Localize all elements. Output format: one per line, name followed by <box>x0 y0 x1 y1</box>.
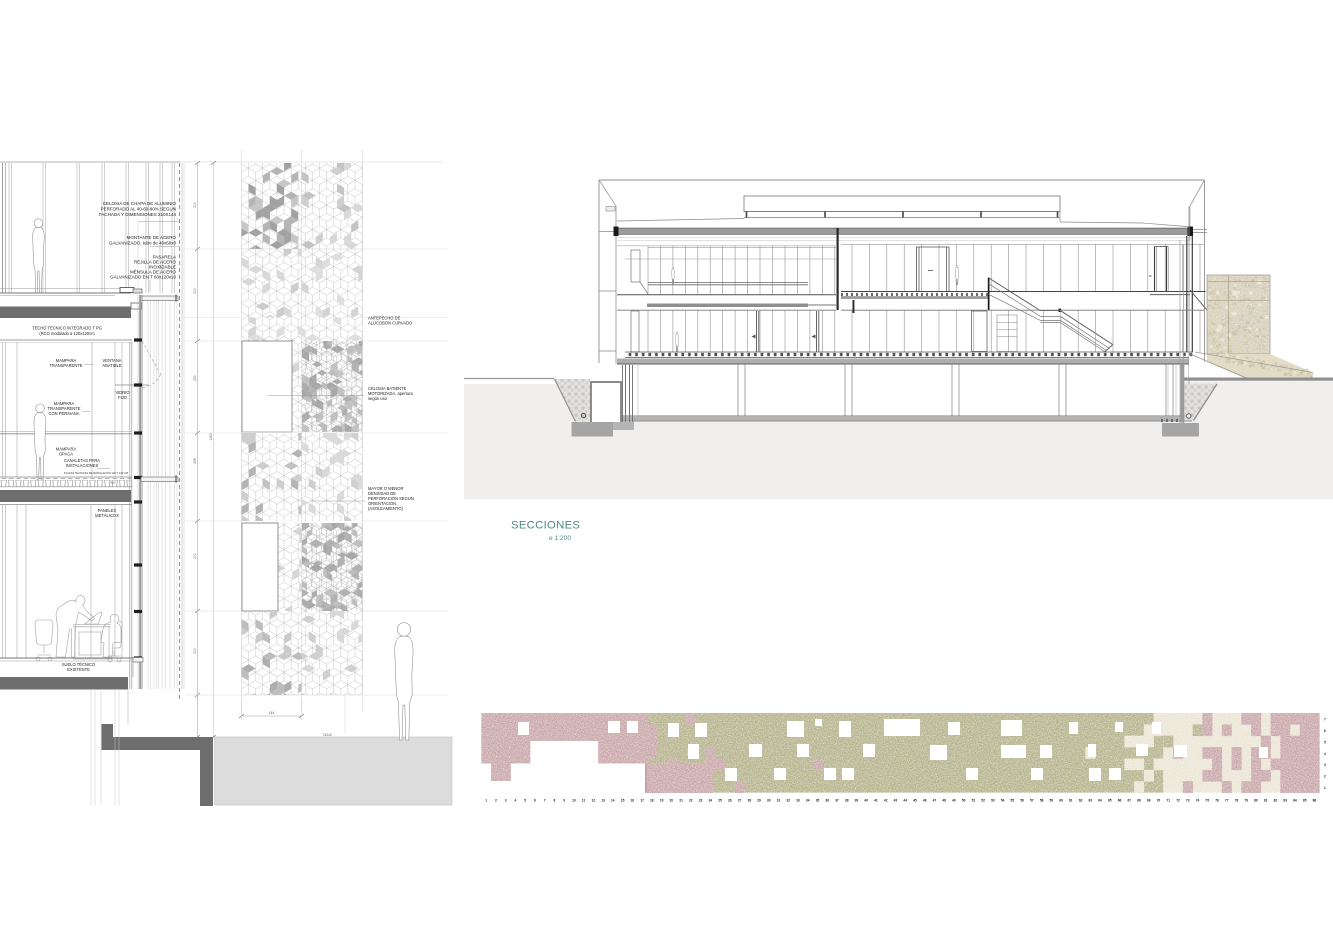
svg-text:36: 36 <box>825 799 829 803</box>
svg-text:33: 33 <box>796 799 800 803</box>
svg-text:6: 6 <box>534 799 536 803</box>
svg-text:9: 9 <box>563 799 565 803</box>
svg-text:41: 41 <box>874 799 878 803</box>
svg-text:57: 57 <box>1030 799 1034 803</box>
svg-text:1: 1 <box>485 799 487 803</box>
svg-text:12: 12 <box>592 799 596 803</box>
svg-text:210: 210 <box>193 288 197 294</box>
svg-text:14: 14 <box>611 799 615 803</box>
svg-text:6: 6 <box>1324 729 1326 733</box>
svg-text:51: 51 <box>972 799 976 803</box>
svg-text:ABATIBLE: ABATIBLE <box>102 363 122 368</box>
svg-text:210: 210 <box>193 648 197 654</box>
svg-text:8: 8 <box>554 799 556 803</box>
svg-text:4: 4 <box>1324 752 1326 756</box>
svg-text:26: 26 <box>728 799 732 803</box>
svg-text:20: 20 <box>670 799 674 803</box>
svg-text:22: 22 <box>689 799 693 803</box>
svg-text:5: 5 <box>524 799 526 803</box>
svg-text:46: 46 <box>923 799 927 803</box>
svg-text:45: 45 <box>913 799 917 803</box>
svg-text:2: 2 <box>1324 775 1326 779</box>
svg-text:según uso: según uso <box>368 396 388 401</box>
svg-text:(ASOLEAMIENTO): (ASOLEAMIENTO) <box>368 506 404 511</box>
svg-text:71: 71 <box>1167 799 1171 803</box>
svg-text:18: 18 <box>650 799 654 803</box>
svg-text:52: 52 <box>981 799 985 803</box>
svg-text:0.00: 0.00 <box>110 481 116 485</box>
svg-text:43: 43 <box>894 799 898 803</box>
svg-text:81: 81 <box>1264 799 1268 803</box>
svg-text:59: 59 <box>1050 799 1054 803</box>
svg-text:10: 10 <box>572 799 576 803</box>
svg-text:259: 259 <box>193 458 197 464</box>
svg-text:80: 80 <box>1254 799 1258 803</box>
svg-text:73: 73 <box>1186 799 1190 803</box>
svg-text:23: 23 <box>699 799 703 803</box>
svg-text:63: 63 <box>1089 799 1093 803</box>
svg-text:85: 85 <box>1303 799 1307 803</box>
svg-text:37: 37 <box>835 799 839 803</box>
svg-text:47: 47 <box>933 799 937 803</box>
svg-text:19: 19 <box>660 799 664 803</box>
svg-text:64: 64 <box>1098 799 1102 803</box>
svg-text:38: 38 <box>845 799 849 803</box>
svg-text:210: 210 <box>193 202 197 208</box>
svg-text:270: 270 <box>193 553 197 559</box>
svg-text:84: 84 <box>1293 799 1297 803</box>
svg-text:TRANSPARENTE: TRANSPARENTE <box>50 363 83 368</box>
svg-text:16: 16 <box>631 799 635 803</box>
svg-text:FIJO: FIJO <box>118 395 127 400</box>
svg-text:28: 28 <box>748 799 752 803</box>
svg-text:83: 83 <box>1283 799 1287 803</box>
svg-text:MONTANTE DE ACERO: MONTANTE DE ACERO <box>127 235 177 240</box>
svg-text:25: 25 <box>718 799 722 803</box>
svg-text:40: 40 <box>864 799 868 803</box>
svg-text:76: 76 <box>1215 799 1219 803</box>
svg-text:49: 49 <box>952 799 956 803</box>
svg-text:CELOSIA DE CHAPA DE ALUMINIO: CELOSIA DE CHAPA DE ALUMINIO <box>103 201 177 206</box>
svg-text:11: 11 <box>582 799 586 803</box>
svg-text:75: 75 <box>1205 799 1209 803</box>
svg-text:27: 27 <box>738 799 742 803</box>
svg-text:220: 220 <box>193 375 197 381</box>
svg-text:82: 82 <box>1274 799 1278 803</box>
svg-text:5: 5 <box>1324 741 1326 745</box>
svg-text:FACHADA Y DIMENSIONES 210X144: FACHADA Y DIMENSIONES 210X144 <box>99 212 177 217</box>
svg-text:SECCIONES: SECCIONES <box>511 520 580 532</box>
svg-text:30: 30 <box>767 799 771 803</box>
svg-text:68: 68 <box>1137 799 1141 803</box>
svg-text:61: 61 <box>1069 799 1073 803</box>
svg-text:3: 3 <box>505 799 507 803</box>
svg-text:86: 86 <box>1313 799 1317 803</box>
svg-text:GALVANIZADO EN T 60x120x10: GALVANIZADO EN T 60x120x10 <box>110 275 176 280</box>
svg-text:44: 44 <box>903 799 907 803</box>
svg-text:TECHO TECNICO INTEGRADO T PG: TECHO TECNICO INTEGRADO T PG <box>32 326 102 331</box>
svg-text:METÁLICOS: METÁLICOS <box>95 513 119 518</box>
svg-text:56: 56 <box>1020 799 1024 803</box>
svg-text:70: 70 <box>1157 799 1161 803</box>
svg-text:32: 32 <box>786 799 790 803</box>
svg-text:15: 15 <box>621 799 625 803</box>
svg-text:50: 50 <box>962 799 966 803</box>
svg-text:13: 13 <box>601 799 605 803</box>
svg-text:2: 2 <box>495 799 497 803</box>
svg-text:EXISTENTE: EXISTENTE <box>67 667 90 672</box>
svg-text:e 1:200: e 1:200 <box>549 535 571 542</box>
svg-text:77: 77 <box>1225 799 1229 803</box>
svg-text:CON PERSIANA: CON PERSIANA <box>49 411 80 416</box>
svg-text:74: 74 <box>1196 799 1200 803</box>
svg-text:72: 72 <box>1176 799 1180 803</box>
svg-text:144: 144 <box>269 711 275 715</box>
svg-text:(RCO modulado a 120x120cm: (RCO modulado a 120x120cm <box>39 331 95 336</box>
svg-text:7: 7 <box>544 799 546 803</box>
svg-text:1: 1 <box>1324 786 1326 790</box>
svg-text:48: 48 <box>942 799 946 803</box>
svg-text:31: 31 <box>777 799 781 803</box>
svg-text:39: 39 <box>855 799 859 803</box>
svg-text:55: 55 <box>1011 799 1015 803</box>
svg-text:66: 66 <box>1118 799 1122 803</box>
svg-text:58: 58 <box>1040 799 1044 803</box>
svg-text:54: 54 <box>1001 799 1005 803</box>
svg-text:1260: 1260 <box>209 433 213 441</box>
svg-text:ALUCOBON CURVADO: ALUCOBON CURVADO <box>368 321 412 326</box>
svg-text:79: 79 <box>1244 799 1248 803</box>
svg-text:53: 53 <box>991 799 995 803</box>
svg-text:65: 65 <box>1108 799 1112 803</box>
svg-text:60: 60 <box>1059 799 1063 803</box>
svg-text:17: 17 <box>640 799 644 803</box>
svg-text:INSTALACIONES: INSTALACIONES <box>66 463 99 468</box>
svg-text:743.8: 743.8 <box>323 733 332 737</box>
svg-text:3: 3 <box>1324 763 1326 767</box>
svg-text:21: 21 <box>679 799 683 803</box>
svg-text:24: 24 <box>709 799 713 803</box>
svg-text:62: 62 <box>1079 799 1083 803</box>
svg-text:GALVANIZADO, tubo de 40x60x0: GALVANIZADO, tubo de 40x60x0 <box>109 241 177 246</box>
svg-text:4: 4 <box>515 799 517 803</box>
svg-text:42: 42 <box>884 799 888 803</box>
svg-text:34: 34 <box>806 799 810 803</box>
svg-text:78: 78 <box>1235 799 1239 803</box>
svg-text:35: 35 <box>816 799 820 803</box>
svg-text:7: 7 <box>1324 718 1326 722</box>
svg-text:67: 67 <box>1128 799 1132 803</box>
svg-text:69: 69 <box>1147 799 1151 803</box>
svg-text:29: 29 <box>757 799 761 803</box>
svg-text:OPACA: OPACA <box>59 452 73 457</box>
svg-text:PERFORADO AL 40-60-80% SEGUN: PERFORADO AL 40-60-80% SEGUN <box>101 207 176 212</box>
